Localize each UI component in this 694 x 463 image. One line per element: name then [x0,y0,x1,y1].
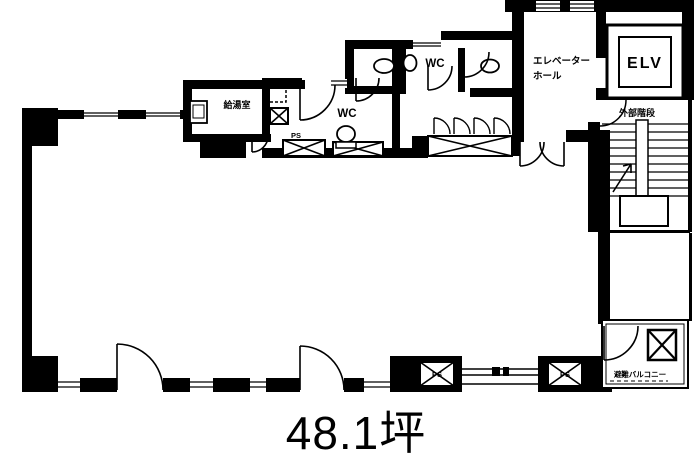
evacuation-balcony-label: 避難バルコニー [614,369,666,379]
ps-entry-label: PS [291,131,301,140]
toilet-icon [336,126,356,148]
ps-bottom-right-label: PS [560,370,570,379]
external-stairs-label: 外部階段 [618,107,656,118]
floor-area-label: 48.1坪 [286,407,427,459]
floor-plan-page: ELV エレベーター ホール 外部階段 給湯室 WC WC PS PS PS 避… [0,0,694,463]
toilet-icon [374,59,394,73]
elevator-hall-label-line2: ホール [533,71,562,82]
toilet-icon [481,60,499,73]
kitchenette-label: 給湯室 [223,99,250,110]
escape-hatch-icon [648,330,676,360]
wc-lower-label: WC [337,108,356,120]
sink-icon [190,101,207,123]
floor-plan-drawing: ELV エレベーター ホール 外部階段 給湯室 WC WC PS PS PS 避… [0,0,694,463]
elv-label: ELV [627,55,663,72]
ps-bottom-left-label: PS [432,370,442,379]
wc-upper-label: WC [425,58,444,70]
elevator-hall-label-line1: エレベーター [533,55,590,67]
toilet-icon [404,55,417,71]
